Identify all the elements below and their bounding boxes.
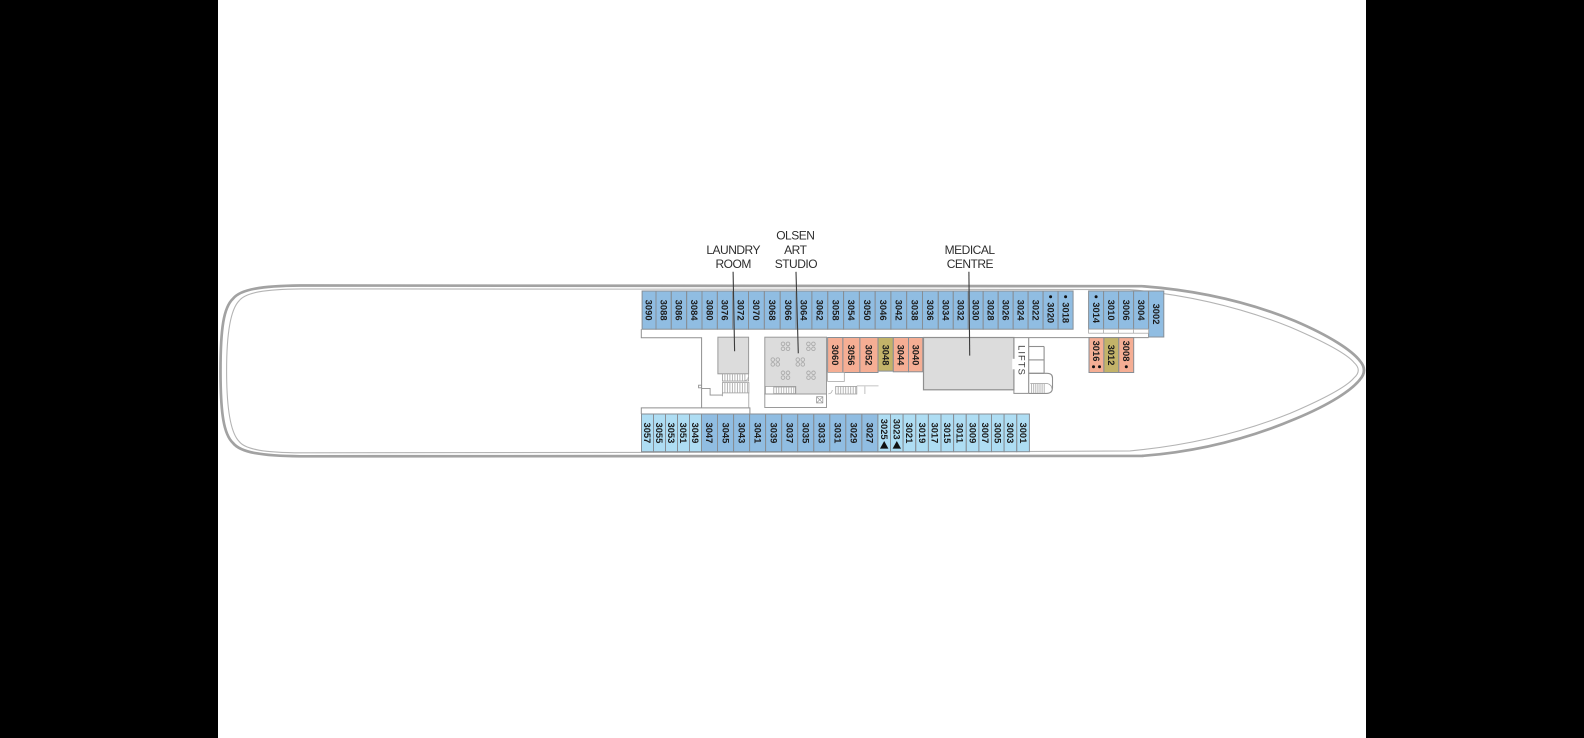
- svg-text:3049: 3049: [690, 422, 701, 443]
- svg-text:3024: 3024: [1015, 300, 1026, 322]
- svg-text:3010: 3010: [1106, 300, 1117, 321]
- svg-text:3046: 3046: [878, 300, 889, 321]
- svg-text:3008: 3008: [1121, 341, 1132, 362]
- svg-text:ROOM: ROOM: [716, 257, 752, 271]
- svg-text:3034: 3034: [941, 300, 952, 322]
- svg-text:3052: 3052: [864, 345, 875, 366]
- svg-text:3012: 3012: [1106, 345, 1117, 366]
- svg-text:3037: 3037: [784, 422, 795, 443]
- svg-text:3054: 3054: [846, 300, 857, 322]
- svg-text:3023: 3023: [892, 419, 903, 440]
- svg-text:3060: 3060: [830, 345, 841, 366]
- svg-text:3014: 3014: [1091, 302, 1102, 324]
- svg-text:3019: 3019: [917, 422, 928, 443]
- svg-text:MEDICAL: MEDICAL: [945, 243, 996, 257]
- svg-text:3044: 3044: [896, 345, 907, 367]
- svg-text:3053: 3053: [666, 422, 677, 443]
- svg-text:3045: 3045: [720, 422, 731, 443]
- svg-text:3039: 3039: [768, 422, 779, 443]
- svg-text:3064: 3064: [799, 300, 810, 322]
- svg-text:3070: 3070: [751, 300, 762, 321]
- svg-text:3084: 3084: [689, 300, 700, 322]
- svg-text:3009: 3009: [967, 422, 978, 443]
- svg-text:3033: 3033: [817, 422, 828, 443]
- svg-text:3025: 3025: [879, 419, 890, 440]
- svg-text:3072: 3072: [735, 300, 746, 321]
- svg-text:LIFTS: LIFTS: [1017, 345, 1027, 376]
- svg-text:3021: 3021: [904, 422, 915, 443]
- svg-text:3011: 3011: [955, 423, 966, 443]
- svg-text:3090: 3090: [644, 300, 655, 321]
- svg-text:3086: 3086: [674, 300, 685, 321]
- svg-text:3040: 3040: [910, 345, 921, 366]
- svg-text:3041: 3041: [752, 422, 763, 443]
- svg-text:3038: 3038: [909, 300, 920, 321]
- svg-text:3018: 3018: [1060, 302, 1071, 323]
- svg-text:3015: 3015: [942, 422, 953, 443]
- svg-text:3062: 3062: [815, 300, 826, 321]
- svg-text:3080: 3080: [704, 300, 715, 321]
- svg-text:3031: 3031: [833, 422, 844, 443]
- svg-text:3002: 3002: [1151, 304, 1162, 325]
- svg-text:3007: 3007: [980, 422, 991, 443]
- svg-text:3016: 3016: [1091, 341, 1102, 362]
- svg-text:3058: 3058: [830, 300, 841, 321]
- svg-text:3027: 3027: [865, 422, 876, 443]
- svg-text:3030: 3030: [970, 300, 981, 321]
- svg-text:3076: 3076: [720, 300, 731, 321]
- svg-text:3029: 3029: [849, 422, 860, 443]
- svg-text:3003: 3003: [1005, 422, 1016, 443]
- svg-text:LAUNDRY: LAUNDRY: [706, 243, 760, 257]
- svg-text:3088: 3088: [658, 300, 669, 321]
- svg-text:3005: 3005: [993, 422, 1004, 443]
- svg-text:3006: 3006: [1121, 300, 1132, 321]
- svg-text:3047: 3047: [704, 422, 715, 443]
- svg-text:3066: 3066: [783, 300, 794, 321]
- svg-text:CENTRE: CENTRE: [947, 257, 994, 271]
- svg-text:3017: 3017: [929, 422, 940, 443]
- svg-text:3056: 3056: [846, 345, 857, 366]
- svg-text:3057: 3057: [642, 422, 653, 443]
- svg-text:3022: 3022: [1030, 300, 1041, 321]
- svg-text:3028: 3028: [985, 300, 996, 321]
- svg-text:3020: 3020: [1045, 302, 1056, 323]
- svg-text:3043: 3043: [736, 422, 747, 443]
- svg-text:3050: 3050: [862, 300, 873, 321]
- svg-text:ART: ART: [784, 243, 807, 257]
- svg-text:3068: 3068: [767, 300, 778, 321]
- svg-text:3001: 3001: [1018, 422, 1029, 443]
- svg-text:OLSEN: OLSEN: [776, 229, 814, 243]
- svg-text:3004: 3004: [1136, 300, 1147, 322]
- svg-text:3026: 3026: [1000, 300, 1011, 321]
- svg-text:3036: 3036: [925, 300, 936, 321]
- svg-text:3032: 3032: [956, 300, 967, 321]
- svg-text:3051: 3051: [678, 422, 689, 443]
- svg-text:3048: 3048: [880, 345, 891, 366]
- svg-text:3042: 3042: [894, 300, 905, 321]
- svg-text:3055: 3055: [654, 422, 665, 443]
- svg-text:3035: 3035: [800, 422, 811, 443]
- svg-text:STUDIO: STUDIO: [775, 257, 818, 271]
